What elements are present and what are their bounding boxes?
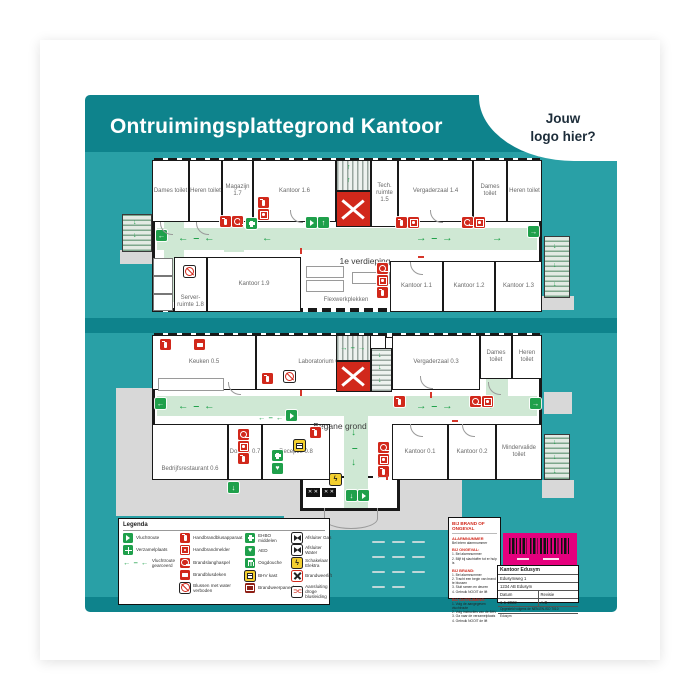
room-kantoor-1-2: Kantoor 1.2 bbox=[443, 261, 495, 312]
exterior-fire-stairs bbox=[122, 214, 152, 252]
room-heren-toilet-1: Heren toilet bbox=[189, 160, 222, 222]
emergency-exit-icon: → bbox=[530, 398, 541, 409]
legend-item: Brandblusdeken bbox=[180, 570, 240, 580]
route-arrows-right: → – → bbox=[416, 233, 454, 244]
closet bbox=[153, 276, 173, 294]
legend-item: ⊃⊂Aansluiting droge blusleiding bbox=[292, 584, 332, 600]
emergency-exit-icon: ↑ bbox=[318, 217, 329, 228]
pavement bbox=[116, 480, 462, 516]
legend-item: Handbrandmelder bbox=[180, 545, 240, 555]
floor1-label: 1e verdieping bbox=[310, 256, 420, 266]
kitchen-counter bbox=[158, 378, 224, 391]
first-aid-icon bbox=[246, 218, 257, 229]
route-arrows-left: ← – ← bbox=[258, 414, 284, 422]
fire-door-mark bbox=[470, 219, 472, 225]
revolving-door bbox=[324, 508, 378, 529]
route-arrows-icon: ← – ← bbox=[123, 559, 149, 567]
assembly-point-icon bbox=[123, 545, 133, 555]
revision-label: Revisie bbox=[538, 591, 579, 598]
legend-item: Brandweerpaneel bbox=[245, 583, 287, 593]
stairwell bbox=[336, 160, 371, 191]
emergency-instructions-panel: BIJ BRAND OF ONGEVAL ALARMNUMMER Bel int… bbox=[448, 517, 501, 599]
route-arrows-left: ← – ← bbox=[178, 401, 216, 412]
barcode-caption bbox=[543, 558, 559, 560]
route-arrow: ↓ bbox=[553, 454, 557, 461]
pavement bbox=[544, 392, 572, 414]
fire-door-mark bbox=[452, 420, 458, 422]
fire-alarm-icon bbox=[378, 454, 389, 465]
route-arrow: ↑ bbox=[347, 177, 351, 184]
fire-alarm-icon bbox=[258, 209, 269, 220]
gas-valve-icon bbox=[292, 533, 302, 543]
fire-extinguisher-icon bbox=[160, 339, 171, 350]
fire-door-mark bbox=[240, 219, 242, 225]
room-magazijn: Magazijn 1.7 bbox=[222, 160, 253, 222]
fire-extinguisher-icon bbox=[220, 216, 231, 227]
no-water-extinguishing-icon bbox=[184, 266, 195, 277]
instruction: 2. Tracht een begin van brand te blussen bbox=[452, 577, 497, 586]
emergency-exit-icon: ↓ bbox=[228, 482, 239, 493]
room-dames-toilet-1: Dames toilet bbox=[152, 160, 189, 222]
turnstile: ✕✕ bbox=[306, 488, 320, 497]
fire-alarm-icon bbox=[408, 217, 419, 228]
emergency-exit-icon: → bbox=[528, 226, 539, 237]
fire-hose-icon bbox=[377, 263, 388, 274]
electrical-switch-icon: ϟ bbox=[330, 474, 341, 485]
legend-title: Legenda bbox=[123, 522, 325, 531]
revision-value: A.B bbox=[538, 599, 579, 606]
elevator-do-not-use bbox=[336, 361, 371, 392]
route-arrow: ↓ bbox=[378, 352, 382, 359]
water-valve-icon bbox=[292, 545, 302, 555]
fire-extinguisher-icon bbox=[377, 287, 388, 298]
instruction: 1. Volg de aangegeven vluchtroute bbox=[452, 602, 497, 611]
route-arrow: ↓ bbox=[553, 439, 557, 446]
first-aid-icon bbox=[245, 533, 255, 543]
fire-extinguisher-icon bbox=[258, 197, 269, 208]
fire-alarm-icon bbox=[482, 396, 493, 407]
closet bbox=[153, 258, 173, 276]
fire-hose-icon bbox=[238, 429, 249, 440]
fire-extinguisher-icon bbox=[238, 453, 249, 464]
legend-item: Brandslanghaspel bbox=[180, 558, 240, 568]
no-water-extinguishing-icon bbox=[180, 583, 190, 593]
fire-door-mark bbox=[418, 256, 424, 258]
fire-extinguisher-icon bbox=[310, 427, 321, 438]
legend-item: Oogdouche bbox=[245, 558, 287, 568]
route-arrow: ← bbox=[262, 233, 274, 244]
barcode bbox=[509, 538, 571, 554]
aed-icon bbox=[245, 546, 255, 556]
route-arrows-right: → – → bbox=[416, 401, 454, 412]
legend-box: Legenda Vluchtroute Verzamelplaats ← – ←… bbox=[118, 518, 330, 605]
closet bbox=[153, 294, 173, 311]
legend-item: AED bbox=[245, 546, 287, 556]
info-table: Kantoor Edusym Edusymweg 1 1234 AB Edusy… bbox=[497, 565, 579, 603]
emergency-exit-icon bbox=[286, 410, 297, 421]
route-arrow: ↓ bbox=[351, 428, 356, 438]
pavement bbox=[116, 388, 152, 480]
address-line1: Edusymweg 1 bbox=[498, 575, 578, 583]
pavement bbox=[120, 250, 154, 264]
aed-icon bbox=[272, 463, 283, 474]
legend-item: Afsluiter Water bbox=[292, 545, 332, 556]
route-arrow: ↓ bbox=[553, 262, 557, 269]
desk bbox=[306, 266, 344, 278]
route-arrow: ↓ bbox=[133, 232, 137, 239]
elevator-do-not-use bbox=[336, 191, 371, 227]
room-kantoor-1-9: Kantoor 1.9 bbox=[207, 257, 301, 312]
fire-alarm-icon bbox=[238, 441, 249, 452]
pavement bbox=[542, 296, 574, 310]
fire-door-mark bbox=[300, 390, 302, 396]
desk bbox=[306, 280, 344, 292]
instruction: 2. Blijf bij slachtoffer tot er hulp is bbox=[452, 557, 497, 566]
eye-wash-icon bbox=[245, 558, 255, 568]
electrical-switch-icon: ϟ bbox=[292, 558, 302, 568]
emergency-exit-icon: ← bbox=[155, 398, 166, 409]
bhv-cabinet-icon bbox=[294, 440, 305, 451]
room-dames-toilet-1b: Dames toilet bbox=[473, 160, 507, 222]
fire-elevator-icon bbox=[292, 571, 302, 581]
route-arrow: ↓ bbox=[378, 377, 382, 384]
exterior-fire-stairs bbox=[544, 434, 570, 480]
emergency-exit-icon: ↓ bbox=[346, 490, 357, 501]
room-mindervalide-toilet: Mindervalide toilet bbox=[496, 424, 542, 480]
legend-item: BHV kast bbox=[245, 571, 287, 581]
fire-blanket-icon bbox=[180, 570, 190, 580]
poster-title: Ontruimingsplattegrond Kantoor bbox=[110, 115, 443, 139]
standard-note: Opgesteld volgens de NEN-EN-ISO 7010 bbox=[498, 607, 578, 614]
publisher: Edusym bbox=[498, 614, 578, 620]
fire-blanket-icon bbox=[194, 339, 205, 350]
room-vergaderzaal-0-3: Vergaderzaal 0.3 bbox=[392, 335, 480, 390]
address-line2: 1234 AB Edusym bbox=[498, 583, 578, 591]
instruction: 4. Gebruik NOOIT de lift bbox=[452, 590, 497, 594]
company-name: Kantoor Edusym bbox=[498, 566, 578, 575]
no-water-extinguishing-icon bbox=[284, 371, 295, 382]
legend-item: Afsluiter Gas bbox=[292, 533, 332, 543]
route-arrows-right: → – → bbox=[340, 344, 366, 352]
room-tech-ruimte: Tech. ruimte 1.5 bbox=[371, 160, 398, 227]
legend-item: Vluchtroute bbox=[123, 533, 175, 543]
emergency-exit-icon bbox=[358, 490, 369, 501]
emergency-exit-icon bbox=[123, 533, 133, 543]
route-arrow: ↓ bbox=[553, 468, 557, 475]
fire-extinguisher-icon bbox=[262, 373, 273, 384]
emergency-header: BIJ BRAND OF ONGEVAL bbox=[452, 521, 497, 534]
fire-door-mark bbox=[300, 248, 302, 254]
dry-riser-icon: ⊃⊂ bbox=[292, 587, 302, 597]
fire-alarm-icon bbox=[377, 275, 388, 286]
route-arrow: ↑ bbox=[347, 164, 351, 171]
fire-alarm-icon bbox=[180, 545, 190, 555]
legend-item: Brandweerlift bbox=[292, 571, 332, 581]
legend-item: Verzamelplaats bbox=[123, 545, 175, 555]
date-value: 1-1-2022 bbox=[498, 599, 538, 606]
fire-hose-icon bbox=[470, 396, 481, 407]
route-arrow: ↓ bbox=[351, 458, 356, 468]
fire-alarm-icon bbox=[474, 217, 485, 228]
emergency-exit-icon bbox=[306, 217, 317, 228]
room-bedrijfsrestaurant: Bedrijfsrestaurant 0.6 bbox=[152, 424, 228, 480]
route-arrow: ↓ bbox=[553, 243, 557, 250]
logo-text-line2: logo hier? bbox=[530, 128, 595, 146]
pavement bbox=[542, 480, 574, 498]
logo-text-line1: Jouw bbox=[546, 110, 581, 128]
fire-extinguisher-icon bbox=[180, 533, 190, 543]
route-arrow: ↓ bbox=[378, 364, 382, 371]
bhv-cabinet-icon bbox=[245, 571, 255, 581]
date-label: Datum bbox=[498, 591, 538, 598]
instruction: 4. Gebruik NOOIT de lift bbox=[452, 619, 497, 623]
room-kantoor-1-3: Kantoor 1.3 bbox=[495, 261, 542, 312]
legend-item: Blussen met water verboden bbox=[180, 583, 240, 594]
room-dames-toilet-0: Dames toilet bbox=[480, 335, 512, 379]
floor0-label: Begane grond bbox=[295, 421, 385, 431]
alarm-text: Bel intern alarmnummer bbox=[452, 541, 497, 545]
exterior-fire-stairs bbox=[544, 236, 570, 298]
barcode-block bbox=[503, 533, 577, 565]
screenshot-page: Ontruimingsplattegrond Kantoor Jouw logo… bbox=[0, 0, 700, 700]
first-aid-icon bbox=[272, 450, 283, 461]
legend-item: EHBO middelen bbox=[245, 533, 287, 544]
room-heren-toilet-0: Heren toilet bbox=[512, 335, 542, 379]
fire-extinguisher-icon bbox=[394, 396, 405, 407]
route-arrow: → bbox=[492, 233, 504, 244]
stairwell bbox=[371, 348, 392, 392]
fire-hose-icon bbox=[180, 558, 190, 568]
legend-item: ϟSchakelaar Elektra bbox=[292, 558, 332, 569]
fire-brigade-panel-icon bbox=[245, 583, 255, 593]
fire-extinguisher-icon bbox=[396, 217, 407, 228]
route-arrows-left: ← – ← bbox=[178, 233, 216, 244]
route-arrow: – bbox=[352, 444, 358, 454]
room-heren-toilet-1b: Heren toilet bbox=[507, 160, 542, 222]
route-arrow: ↓ bbox=[133, 219, 137, 226]
route-arrow: ↓ bbox=[553, 281, 557, 288]
barcode-caption bbox=[517, 558, 529, 560]
fire-door-mark bbox=[430, 392, 432, 398]
legend-item: ← – ←Vluchtroute gearceerd bbox=[123, 558, 175, 569]
legend-item: Handbrandblusapparaat bbox=[180, 533, 240, 543]
turnstile: ✕✕ bbox=[322, 488, 336, 497]
fire-hose-icon bbox=[378, 442, 389, 453]
fire-door-mark bbox=[386, 474, 388, 480]
